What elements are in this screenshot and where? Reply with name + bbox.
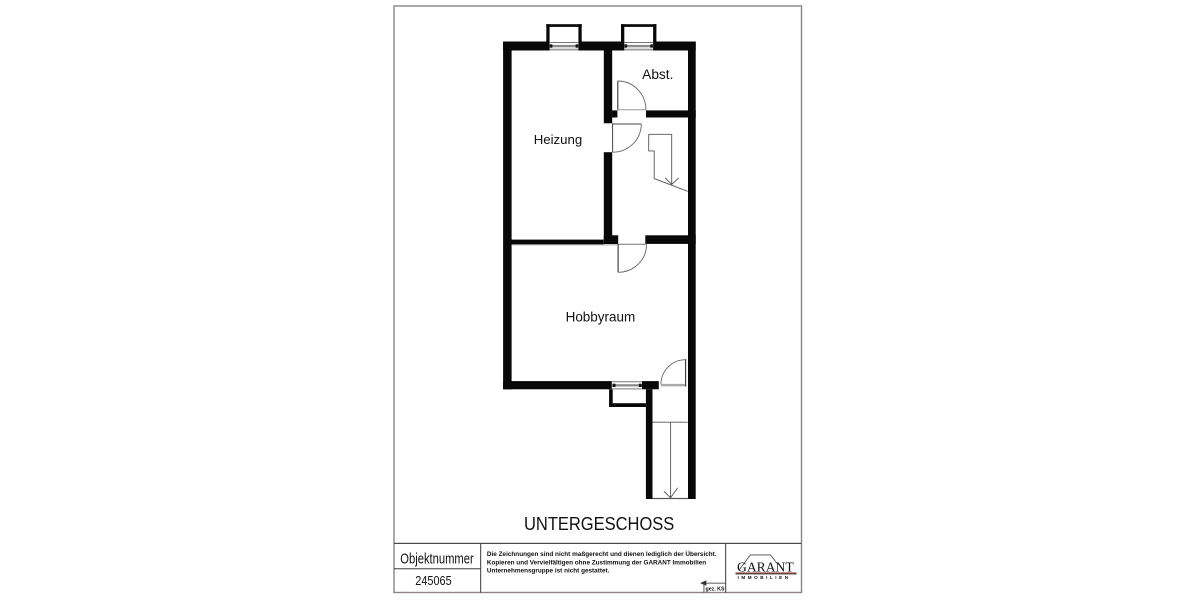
svg-text:245065: 245065 <box>415 574 451 588</box>
svg-text:GARANT: GARANT <box>737 559 794 574</box>
svg-text:gez. KS: gez. KS <box>706 587 725 593</box>
svg-text:UNTERGESCHOSS: UNTERGESCHOSS <box>524 513 674 534</box>
svg-text:Hobbyraum: Hobbyraum <box>566 309 636 325</box>
svg-text:Objektnummer: Objektnummer <box>400 550 473 567</box>
svg-text:Heizung: Heizung <box>534 132 583 147</box>
svg-text:IMMOBILIEN: IMMOBILIEN <box>738 575 791 580</box>
svg-text:Abst.: Abst. <box>642 67 673 82</box>
svg-text:Die Zeichnungen sind nicht maß: Die Zeichnungen sind nicht maßgerecht un… <box>487 549 717 558</box>
svg-text:Unternehmensgruppe ist nicht g: Unternehmensgruppe ist nicht gestattet. <box>487 568 610 575</box>
svg-text:Kopieren und Vervielfältigen o: Kopieren und Vervielfältigen ohne Zustim… <box>487 559 706 566</box>
